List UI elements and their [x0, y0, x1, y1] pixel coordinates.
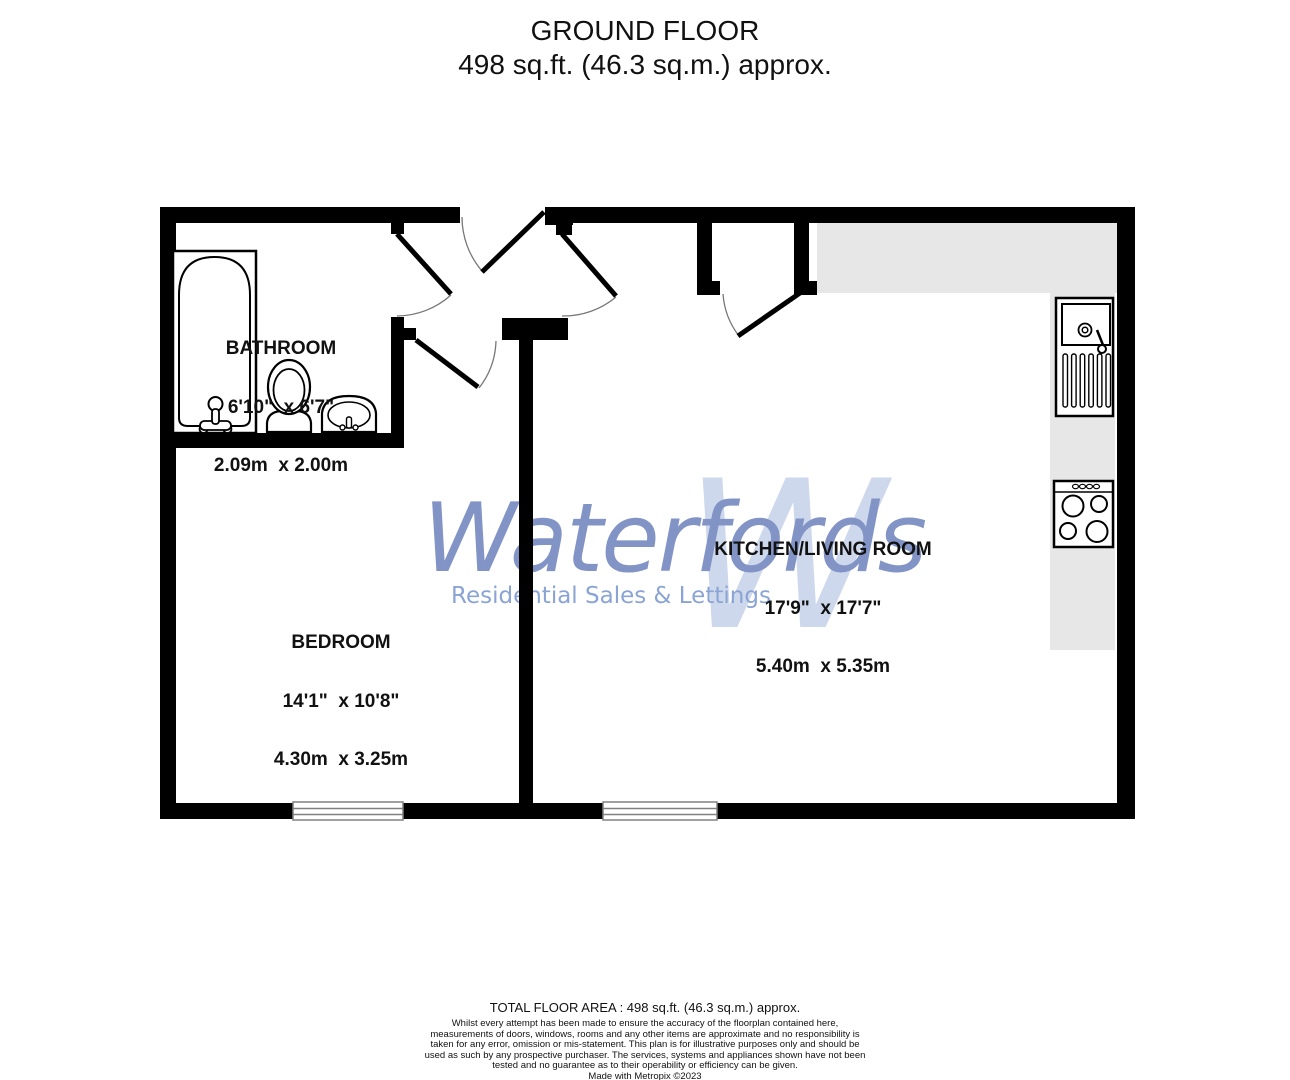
entrance-door-right [562, 234, 616, 296]
floor-name: GROUND FLOOR [0, 14, 1290, 48]
kitchen-living-room-label: KITCHEN/LIVING ROOM 17'9" x 17'7" 5.40m … [698, 501, 948, 716]
bathroom-label: BATHROOM 6'10" x 6'7" 2.09m x 2.00m [156, 300, 406, 515]
room-dims-metric: 5.40m x 5.35m [698, 657, 948, 677]
room-name: BATHROOM [156, 339, 406, 359]
bathroom-door [397, 234, 451, 294]
total-floor-area: TOTAL FLOOR AREA : 498 sq.ft. (46.3 sq.m… [0, 1000, 1290, 1015]
floorplan-drawing [0, 0, 1290, 1080]
plan-title: GROUND FLOOR 498 sq.ft. (46.3 sq.m.) app… [0, 14, 1290, 82]
plan-footer: TOTAL FLOOR AREA : 498 sq.ft. (46.3 sq.m… [0, 1000, 1290, 1080]
room-dims-metric: 4.30m x 3.25m [216, 750, 466, 770]
kitchen-door [738, 293, 800, 336]
sink-unit-icon [1056, 298, 1113, 416]
room-dims-metric: 2.09m x 2.00m [156, 456, 406, 476]
disclaimer-text: Whilst every attempt has been made to en… [423, 1019, 867, 1072]
entrance-door-left [482, 212, 544, 272]
door-leaves [397, 212, 800, 387]
room-dims-imperial: 14'1" x 10'8" [216, 692, 466, 712]
metropix-credit: Made with Metropix ©2023 [0, 1072, 1290, 1080]
bedroom-label: BEDROOM 14'1" x 10'8" 4.30m x 3.25m [216, 594, 466, 809]
room-name: BEDROOM [216, 633, 466, 653]
floor-area: 498 sq.ft. (46.3 sq.m.) approx. [0, 48, 1290, 82]
room-dims-imperial: 17'9" x 17'7" [698, 599, 948, 619]
room-dims-imperial: 6'10" x 6'7" [156, 398, 406, 418]
bedroom-door [416, 340, 478, 387]
stove-icon [1054, 481, 1113, 547]
floorplan-page: GROUND FLOOR 498 sq.ft. (46.3 sq.m.) app… [0, 0, 1290, 1080]
room-name: KITCHEN/LIVING ROOM [698, 540, 948, 560]
